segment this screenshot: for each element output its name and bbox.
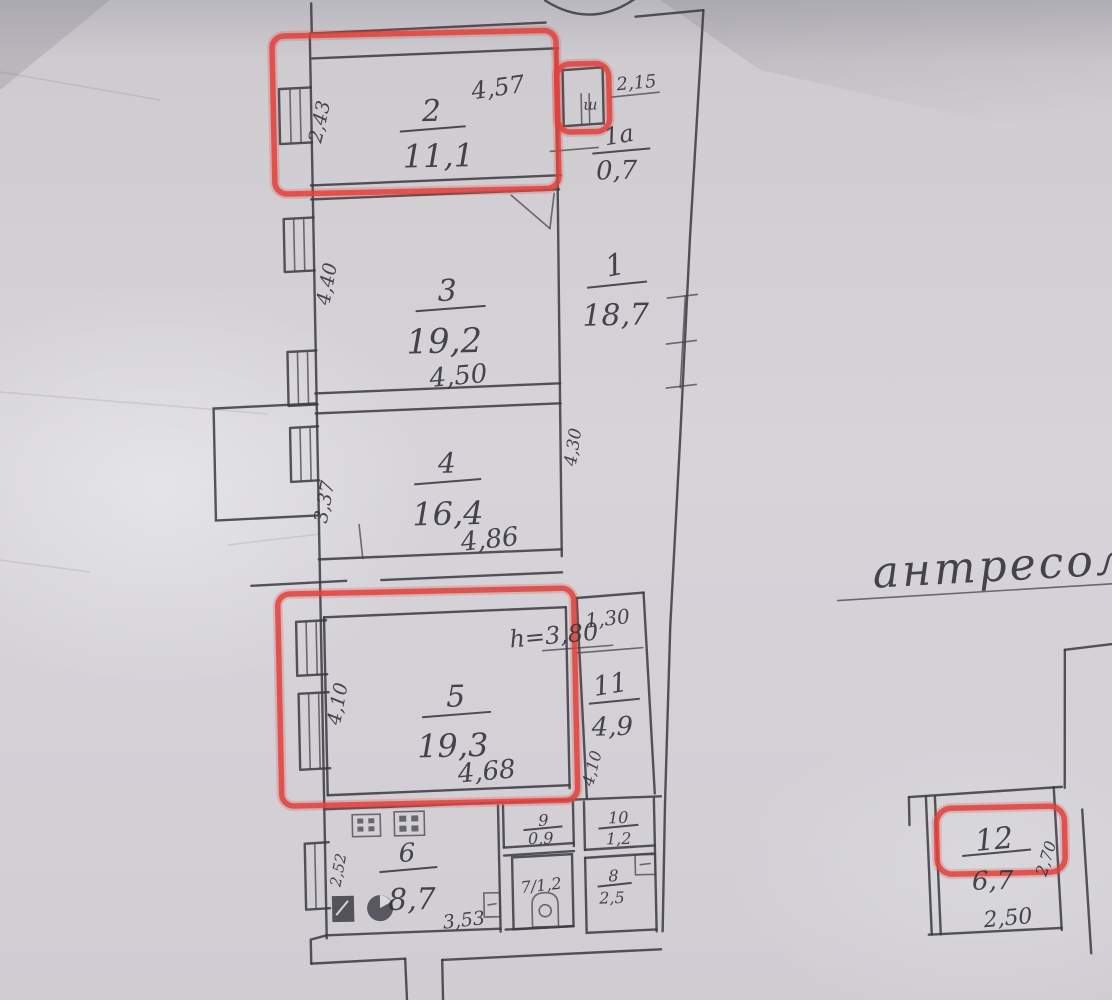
room-number: 5 — [446, 679, 466, 714]
room-area: 8,7 — [388, 882, 437, 918]
room-number: 1а — [602, 119, 636, 151]
room-number: 10 — [608, 808, 629, 827]
room-number: 8 — [608, 866, 619, 885]
floor-plan-drawing: 2 11,1 4,57 2,43 ш 2,15 1а 0,7 1 18,7 4,… — [0, 0, 1112, 1000]
dim-top: 1,30 — [584, 604, 631, 633]
room-area: 0,9 — [528, 829, 554, 849]
closet-dim: 2,15 — [615, 71, 658, 96]
dim-bottom: 2,50 — [981, 904, 1033, 933]
closet-mark: ш — [583, 95, 598, 113]
counter-icon — [332, 896, 355, 922]
room-area: 11,1 — [402, 136, 474, 175]
room-number: 3 — [437, 273, 457, 308]
room-area: 19,2 — [406, 321, 483, 363]
scanned-floor-plan-photo: 2 11,1 4,57 2,43 ш 2,15 1а 0,7 1 18,7 4,… — [0, 0, 1112, 1000]
room-number: 11 — [591, 667, 630, 703]
room-area: 2,5 — [598, 888, 625, 908]
dim-bottom: 3,53 — [442, 907, 486, 933]
room-area: 1,2 — [606, 829, 632, 849]
room-number: 2 — [421, 94, 442, 129]
dim-bottom: 4,86 — [458, 522, 520, 558]
room-area: 18,7 — [582, 297, 650, 333]
room-number: 4 — [437, 446, 457, 479]
dim-bottom: 4,50 — [427, 359, 488, 394]
room-area: 4,9 — [590, 712, 633, 743]
room-number: 6 — [398, 838, 415, 868]
paper-light-patch-left — [0, 280, 440, 700]
room-area: 0,7 — [596, 156, 638, 187]
dim-bottom: 4,68 — [456, 754, 517, 789]
room-area: 6,7 — [972, 866, 1014, 897]
